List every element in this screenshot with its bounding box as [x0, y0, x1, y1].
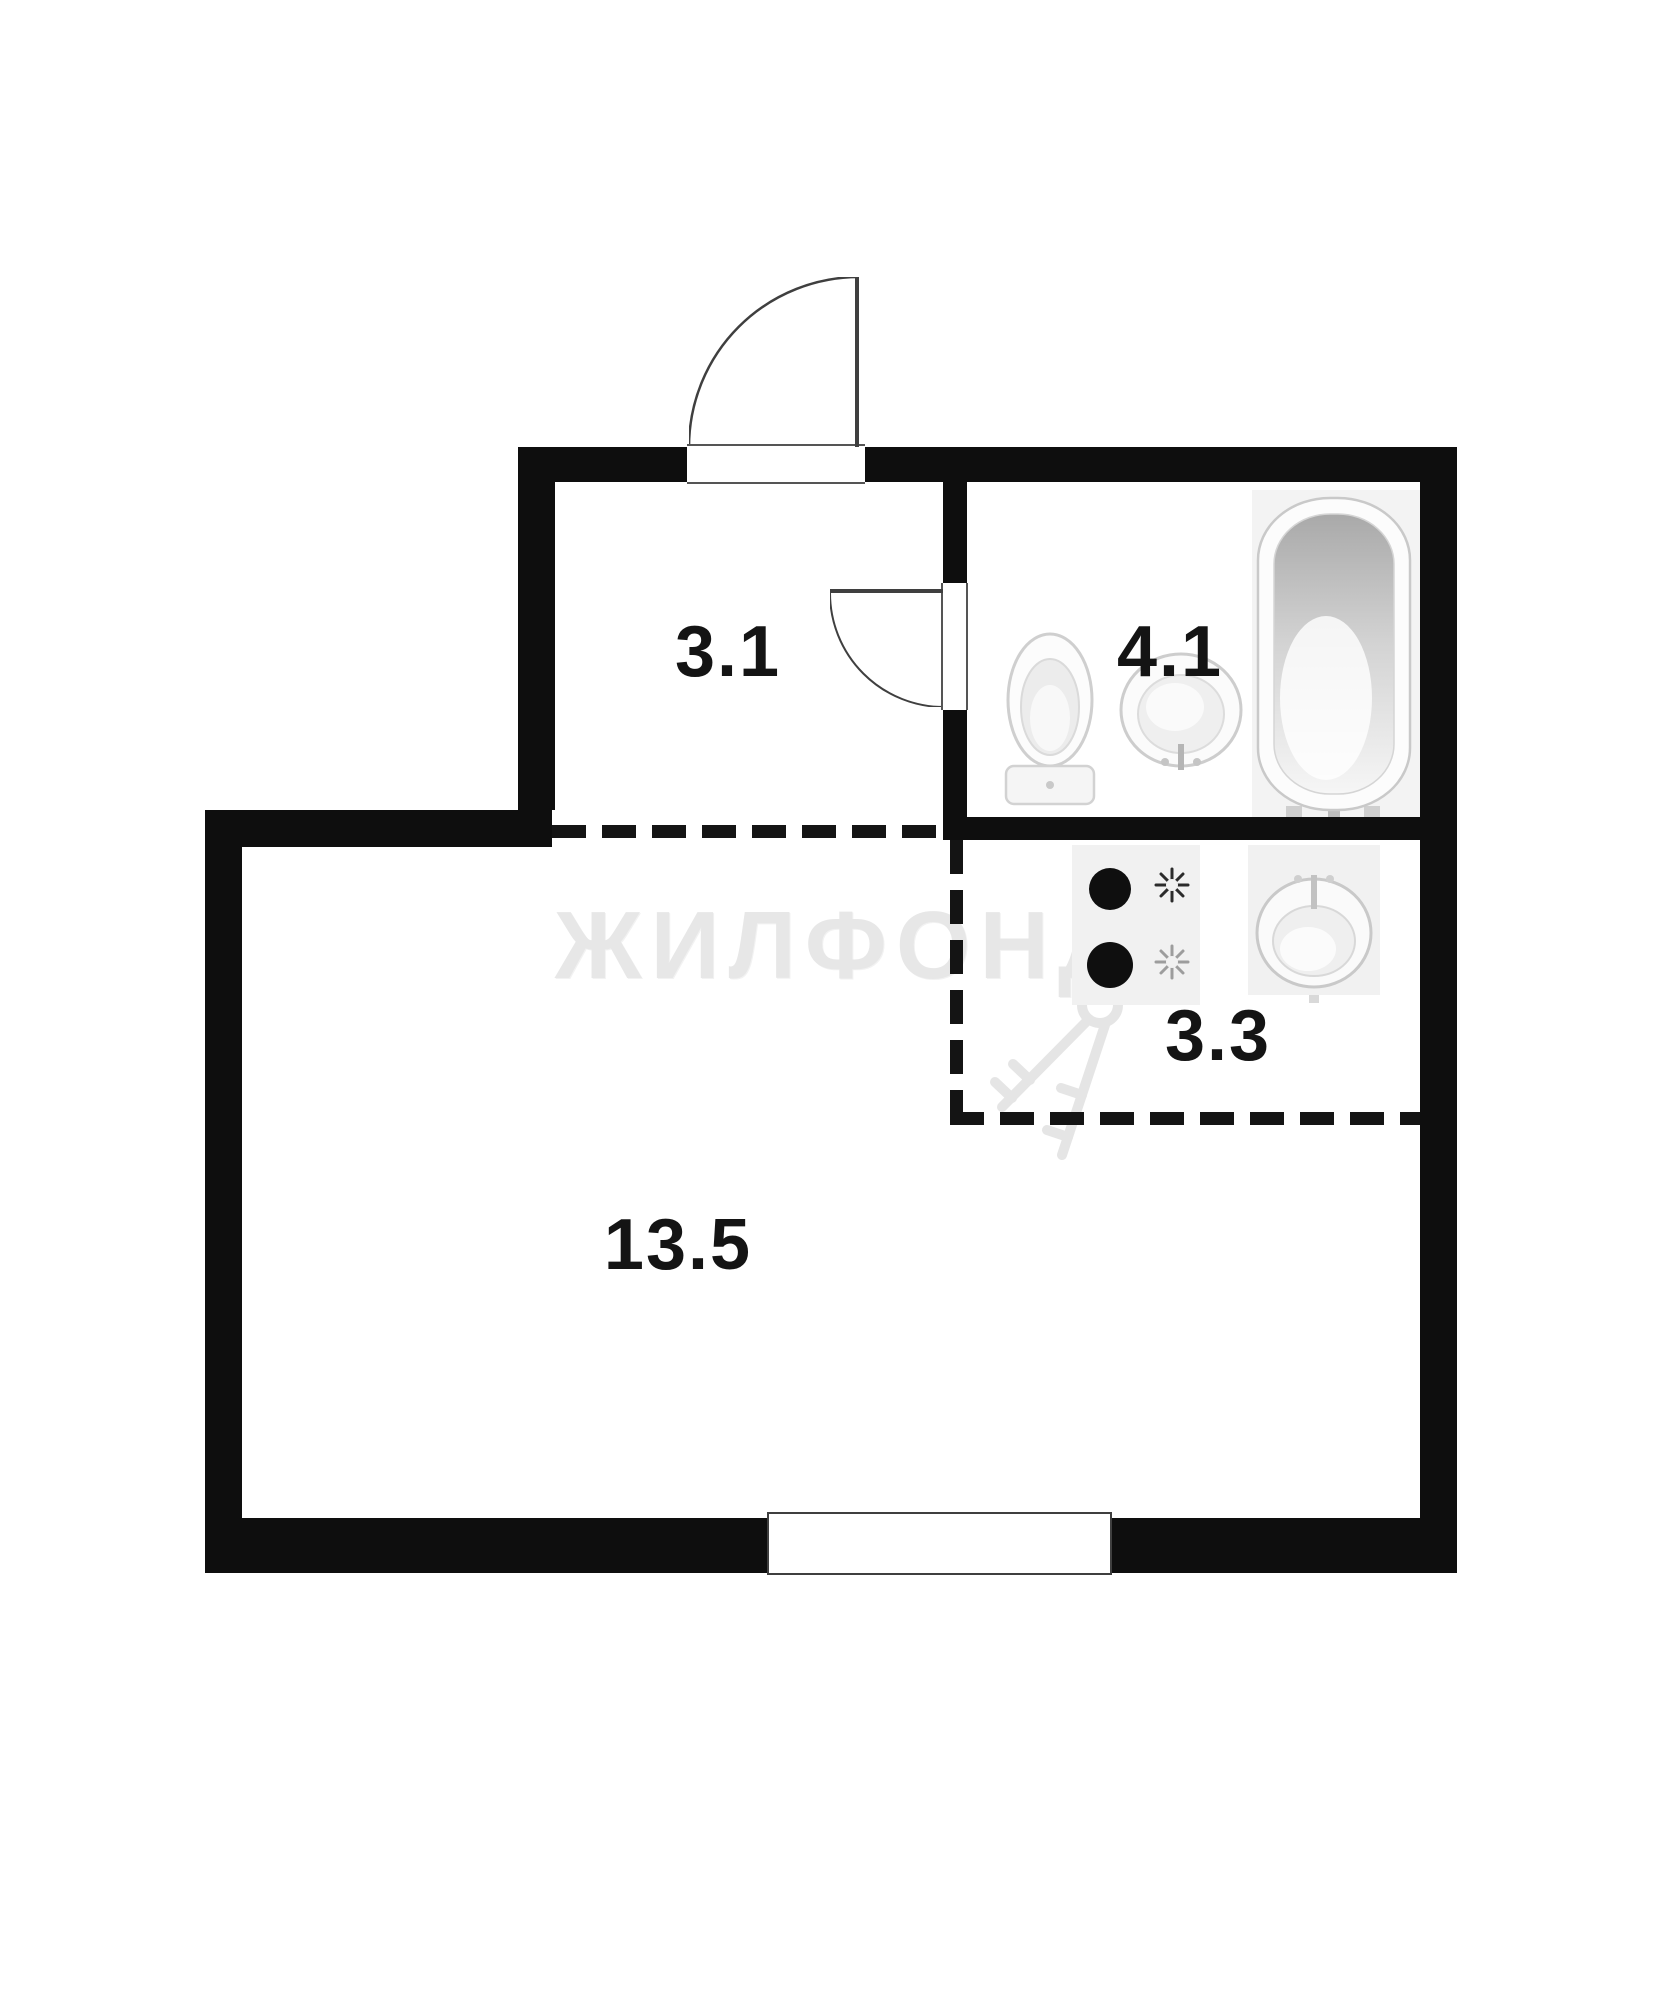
dashed-boundary-hallway-living [552, 825, 943, 838]
toilet-icon [998, 628, 1102, 810]
wall-hallway-bathroom-lower [943, 710, 967, 817]
dashed-boundary-kitchen-bottom [950, 1112, 1420, 1125]
wall-top-right-of-entrance [865, 447, 1457, 482]
wall-top-left-of-entrance [518, 447, 687, 482]
room-label-hallway: 3.1 [675, 611, 781, 693]
room-label-kitchen: 3.3 [1165, 995, 1271, 1077]
wall-bathroom-bottom [943, 817, 1420, 840]
entrance-door-leaf [855, 277, 859, 447]
wall-hallway-bathroom-upper [943, 482, 967, 583]
bathroom-door-leaf [830, 589, 943, 593]
wall-hallway-left [518, 482, 555, 810]
wall-step [205, 810, 552, 847]
floor-plan: ЖИЛФОНД [0, 0, 1663, 2000]
bathroom-door-arc [830, 593, 944, 707]
wall-bottom-right-of-window [1112, 1518, 1457, 1573]
wall-right [1420, 447, 1457, 1573]
window [767, 1512, 1112, 1575]
wall-left [205, 847, 242, 1573]
wall-bottom-left-of-window [205, 1518, 767, 1573]
entrance-door-arc [689, 277, 859, 447]
kitchen-sink-icon [1248, 845, 1380, 1005]
dashed-boundary-kitchen-left [950, 840, 963, 1125]
entrance-door-frame [687, 444, 865, 484]
room-label-bathroom: 4.1 [1117, 611, 1223, 693]
bathtub-icon [1252, 490, 1422, 842]
bathroom-door-frame [941, 583, 968, 710]
stove-icon [1072, 845, 1200, 1005]
room-label-living-room: 13.5 [604, 1204, 752, 1286]
